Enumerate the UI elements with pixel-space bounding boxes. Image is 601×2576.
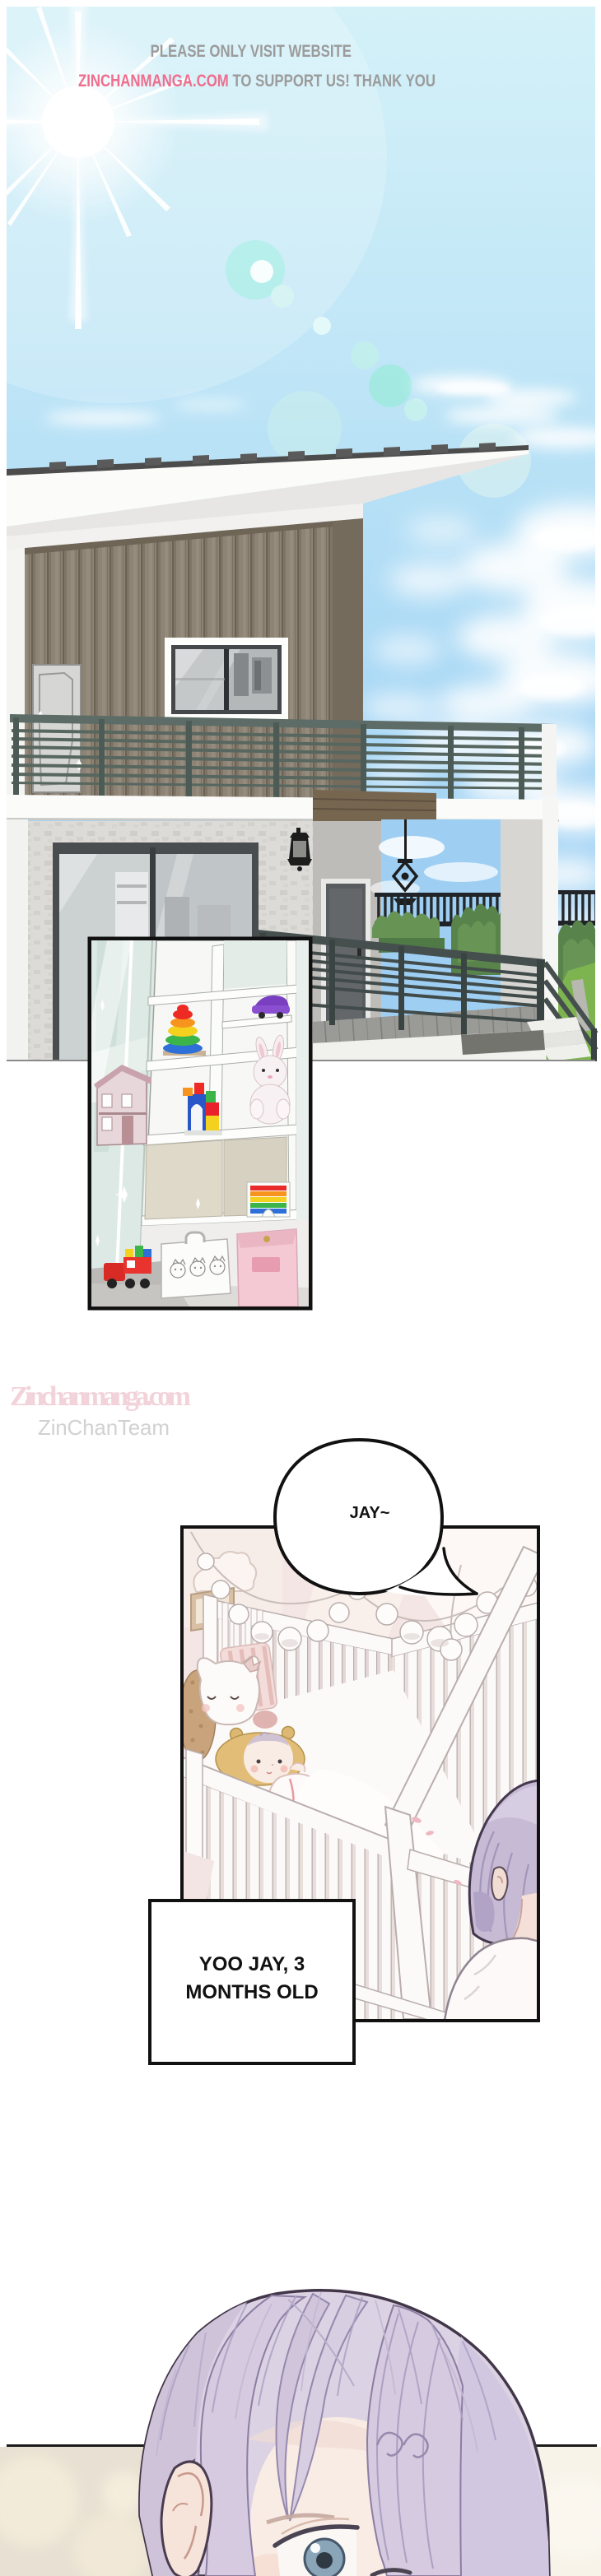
svg-text:Zinchanmanga.com: Zinchanmanga.com	[10, 1381, 191, 1412]
svg-text:ZinChanTeam: ZinChanTeam	[38, 1415, 170, 1440]
svg-text:PLEASE ONLY VISIT WEBSITE: PLEASE ONLY VISIT WEBSITE	[151, 42, 352, 61]
svg-text:JAY~: JAY~	[350, 1504, 390, 1522]
svg-text:MONTHS OLD: MONTHS OLD	[185, 1981, 318, 2003]
svg-text:ZINCHANMANGA.COM TO SUPPORT US: ZINCHANMANGA.COM TO SUPPORT US! THANK YO…	[78, 72, 436, 91]
svg-text:YOO JAY, 3: YOO JAY, 3	[199, 1953, 305, 1975]
